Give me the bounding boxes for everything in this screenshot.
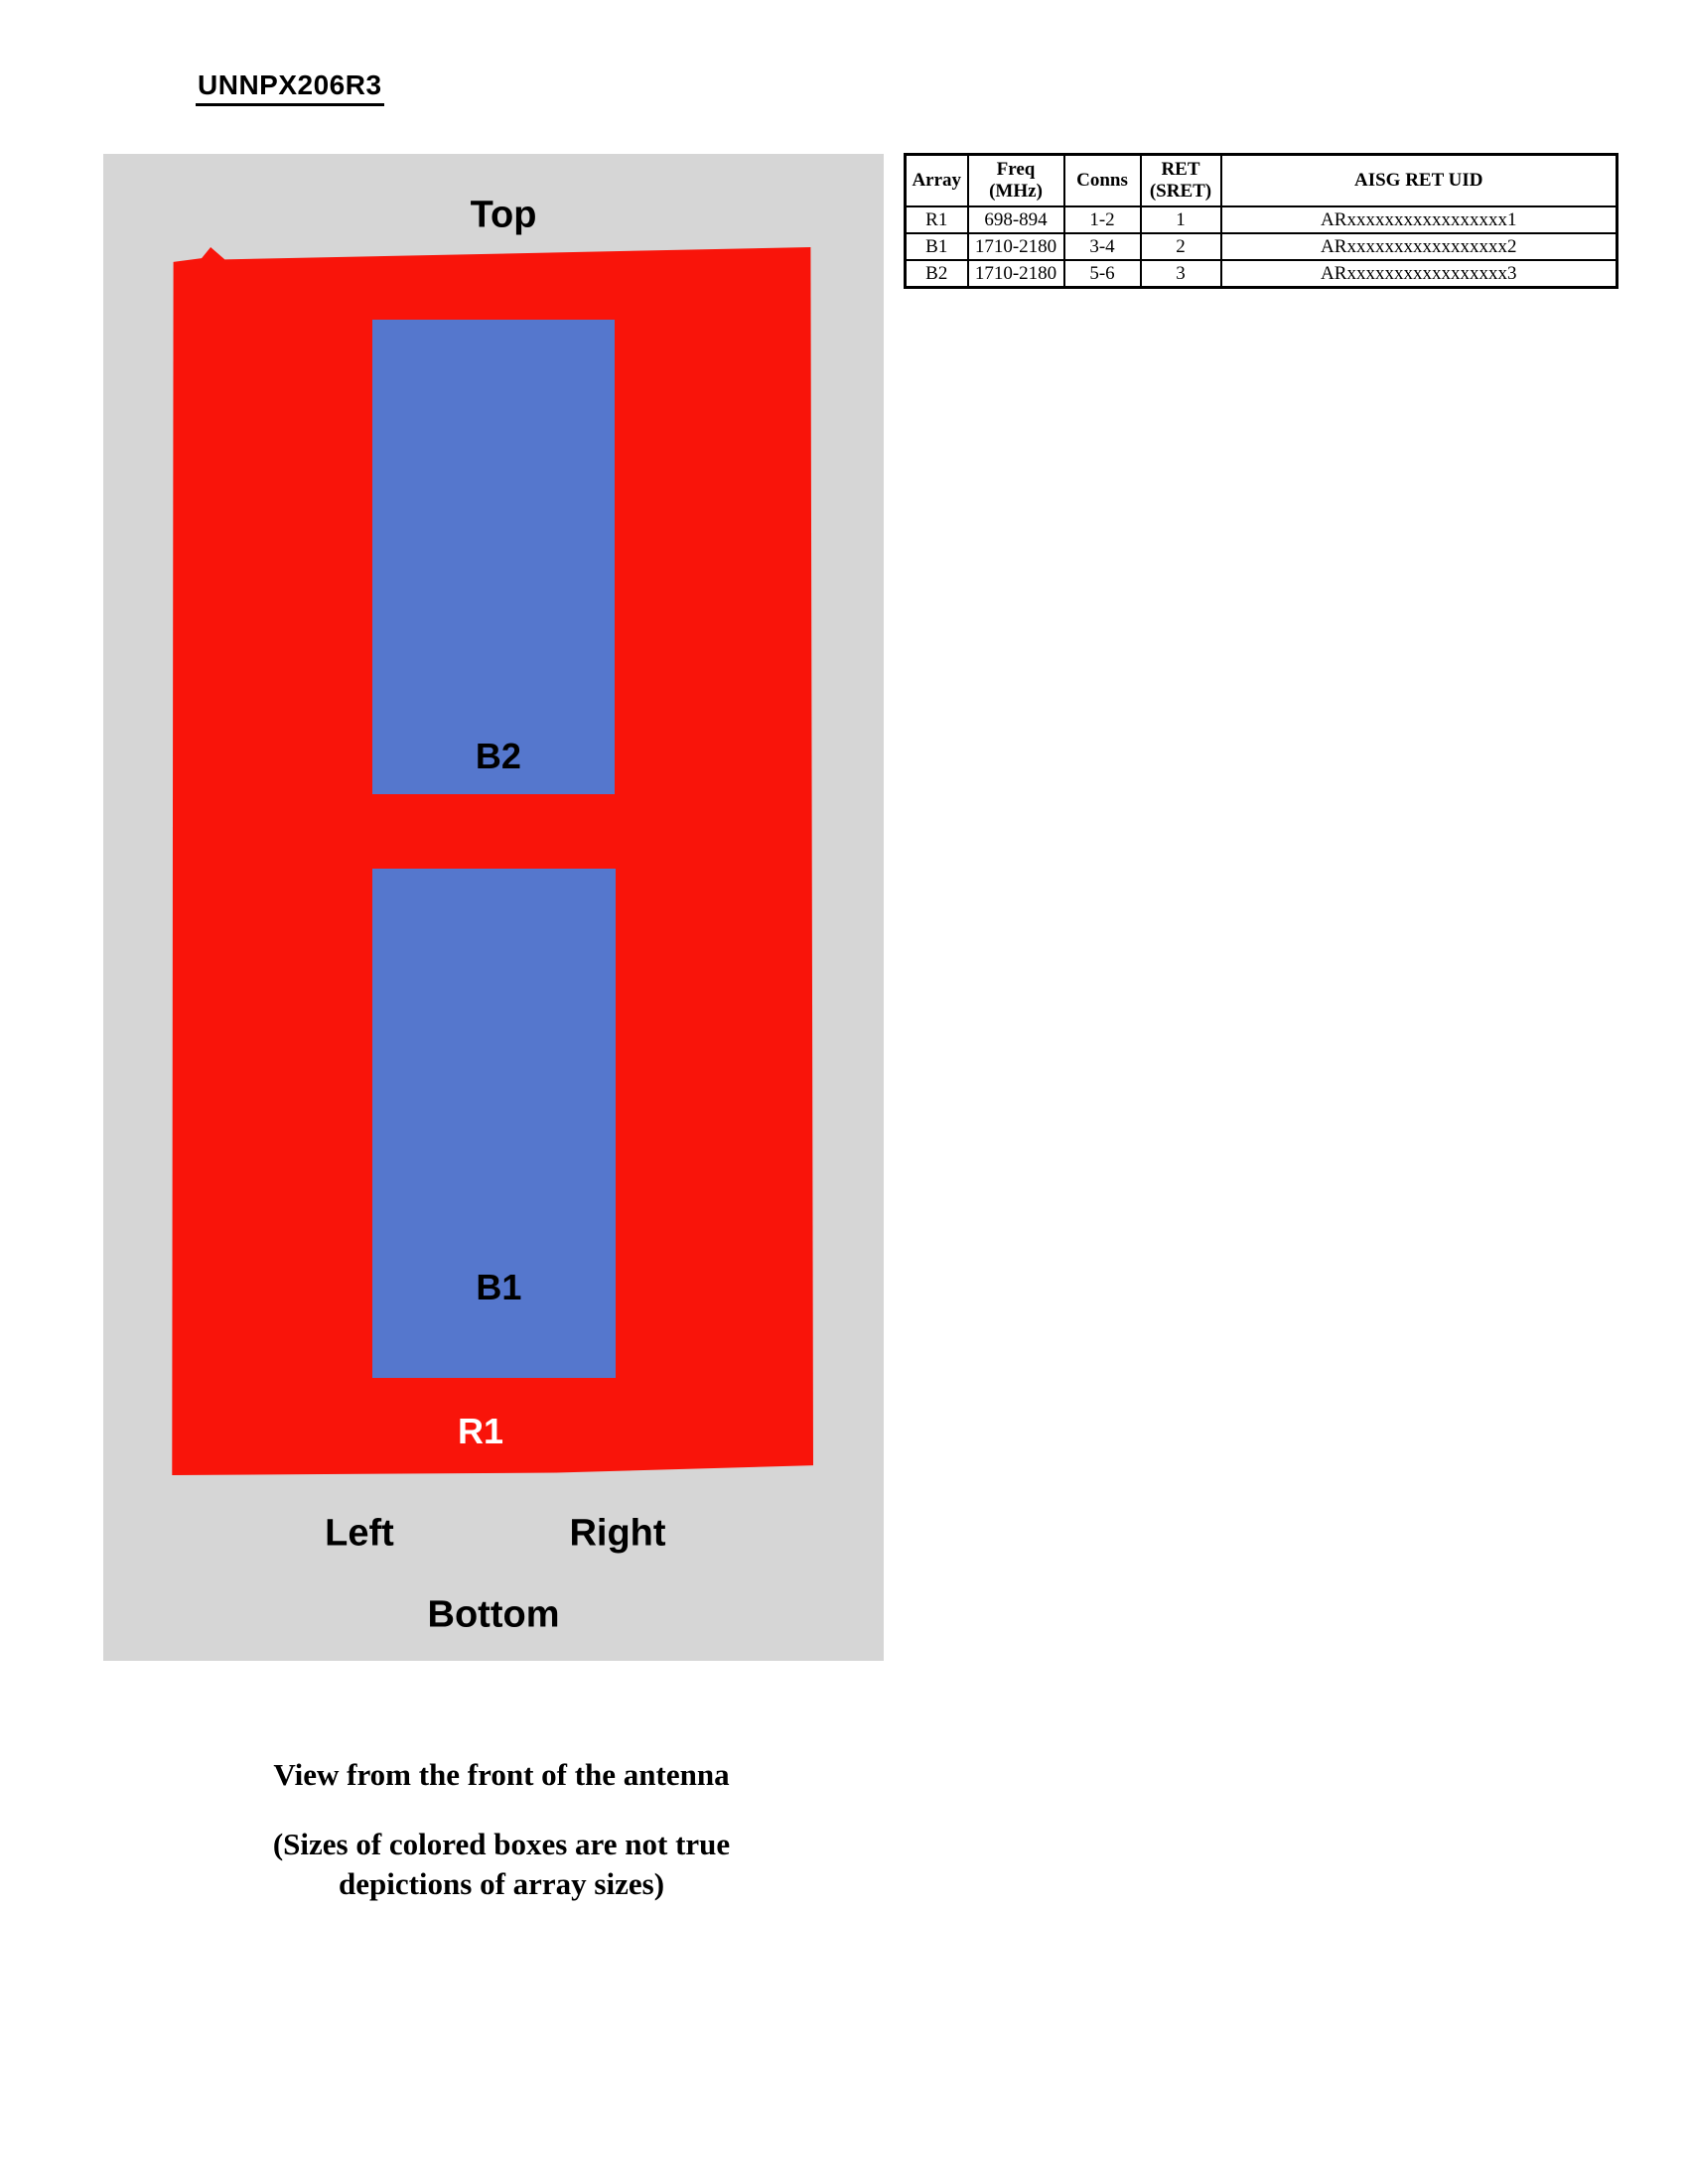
- array-region-r1: B2 B1 R1: [171, 247, 813, 1475]
- label-top: Top: [471, 195, 537, 237]
- document-page: UNNPX206R3 Top B2 B1 R1 Left Right Botto…: [0, 0, 1688, 2184]
- label-r1: R1: [458, 1411, 503, 1452]
- cell-ret: 1: [1141, 206, 1221, 233]
- array-box-b2: B2: [372, 320, 615, 794]
- cell-ret: 2: [1141, 233, 1221, 260]
- page-title: UNNPX206R3: [196, 69, 384, 106]
- table-header-row: Array Freq (MHz) Conns RET (SRET) AISG R…: [906, 155, 1618, 207]
- col-header-aisg-ret-uid: AISG RET UID: [1221, 155, 1618, 207]
- cell-uid: ARxxxxxxxxxxxxxxxxx3: [1221, 260, 1618, 288]
- table-row: B1 1710-2180 3-4 2 ARxxxxxxxxxxxxxxxxx2: [906, 233, 1618, 260]
- col-header-array: Array: [906, 155, 968, 207]
- table-row: R1 698-894 1-2 1 ARxxxxxxxxxxxxxxxxx1: [906, 206, 1618, 233]
- label-bottom: Bottom: [428, 1594, 560, 1637]
- label-b2: B2: [476, 736, 521, 777]
- cell-uid: ARxxxxxxxxxxxxxxxxx2: [1221, 233, 1618, 260]
- label-left: Left: [325, 1513, 394, 1556]
- caption-note-line1: (Sizes of colored boxes are not true: [179, 1825, 824, 1864]
- col-header-freq: Freq (MHz): [968, 155, 1064, 207]
- cell-uid: ARxxxxxxxxxxxxxxxxx1: [1221, 206, 1618, 233]
- cell-freq: 698-894: [968, 206, 1064, 233]
- cell-ret: 3: [1141, 260, 1221, 288]
- cell-conns: 1-2: [1064, 206, 1141, 233]
- cell-array: B2: [906, 260, 968, 288]
- cell-conns: 3-4: [1064, 233, 1141, 260]
- caption-block: View from the front of the antenna (Size…: [179, 1755, 824, 1904]
- cell-freq: 1710-2180: [968, 260, 1064, 288]
- label-b1: B1: [476, 1267, 521, 1308]
- label-right: Right: [569, 1513, 665, 1556]
- caption-view-line: View from the front of the antenna: [179, 1755, 824, 1795]
- cell-freq: 1710-2180: [968, 233, 1064, 260]
- col-header-conns: Conns: [1064, 155, 1141, 207]
- table-row: B2 1710-2180 5-6 3 ARxxxxxxxxxxxxxxxxx3: [906, 260, 1618, 288]
- caption-note-line2: depictions of array sizes): [179, 1864, 824, 1904]
- array-box-b1: B1: [372, 869, 616, 1378]
- cell-array: R1: [906, 206, 968, 233]
- cell-conns: 5-6: [1064, 260, 1141, 288]
- spec-table: Array Freq (MHz) Conns RET (SRET) AISG R…: [904, 153, 1618, 289]
- cell-array: B1: [906, 233, 968, 260]
- antenna-panel: Top B2 B1 R1 Left Right Bottom: [103, 154, 884, 1661]
- col-header-ret: RET (SRET): [1141, 155, 1221, 207]
